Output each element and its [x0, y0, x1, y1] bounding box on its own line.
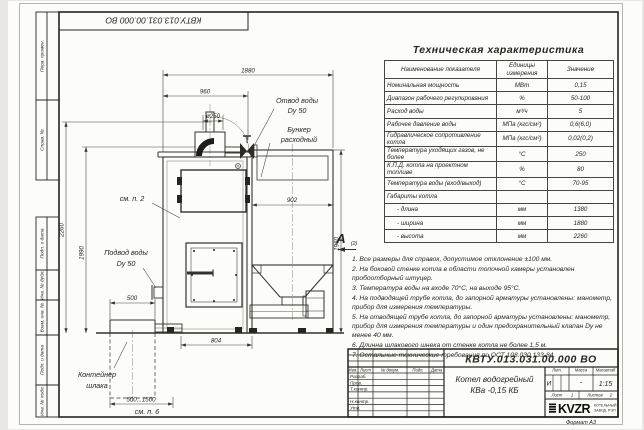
tech-table-title: Техническая характеристика: [384, 44, 613, 56]
col-izm: Изм.: [349, 367, 358, 372]
dim-960: 960: [200, 89, 211, 96]
list-value: 1: [571, 393, 574, 398]
label-bunker-1: Бункер: [287, 125, 310, 134]
stamp-sprav-no: Справ. №: [40, 129, 46, 151]
label-slag-container-1: Контейнер: [78, 370, 116, 379]
row-value: 2260: [548, 230, 614, 243]
view-a-ref: (2): [351, 241, 358, 247]
lit-header: Лит.: [551, 368, 562, 373]
table-row: - длинамм1380: [385, 203, 614, 216]
listov-label: Листов: [586, 393, 603, 398]
row-unit: МВт: [497, 79, 548, 92]
row-value: 70-95: [548, 177, 614, 190]
row-value: 0,6(6,0): [548, 118, 614, 131]
header-name: Наименование показателя: [385, 61, 497, 79]
label-see-note-2: см. п. 2: [120, 194, 144, 203]
row-name: Гидравлическое сопротивление котла: [385, 131, 497, 146]
dim-250: ø250: [206, 113, 221, 120]
row-value: 250: [548, 147, 614, 162]
row-name: Температура уходящих газов, не более: [385, 147, 497, 162]
stamp-perv-primen: Перв. примен.: [40, 40, 46, 72]
dim-1880: 1880: [241, 68, 255, 75]
label-water-outlet-2: Dy 50: [288, 106, 307, 115]
row-tkontr: Т.контр.: [350, 387, 369, 392]
note-6: 6. Длинна шлакового шнека от стенке котл…: [352, 342, 615, 351]
stamp-inv-podl: Инв. № подл.: [40, 386, 46, 416]
table-row: К.П.Д. котла на проектном топливе%80: [385, 162, 614, 177]
dim-2260: 2260: [59, 223, 66, 238]
row-value: 50-100: [548, 92, 614, 105]
label-bunker-2: расходный: [280, 135, 317, 144]
table-row: Расход водым³/ч5: [385, 105, 614, 118]
note-3: 3. Температура воды на входе 70°С, на вы…: [352, 285, 615, 294]
stamp-inv-dubl: Инв. № дубл.: [40, 270, 46, 300]
drawing-sheet: { "page": { "designation_top": "КВТУ.013…: [0, 0, 644, 430]
col-list: Лист: [359, 367, 371, 372]
row-unit: [497, 190, 548, 203]
label-slag-container-2: шлака: [86, 381, 107, 390]
note-4: 4. На подводящей трубе котла, до запорно…: [352, 295, 615, 313]
label-water-inlet-2: Dy 50: [117, 259, 136, 268]
table-row: Номинальная мощностьМВт0,15: [385, 79, 614, 92]
massa-header: Масса: [575, 368, 588, 373]
table-row: Температура уходящих газов, не более°С25…: [385, 147, 614, 162]
tech-table-header-row: Наименование показателя Единицы измерени…: [385, 61, 614, 79]
row-name: Габариты котла: [385, 190, 497, 203]
row-name: К.П.Д. котла на проектном топливе: [385, 162, 497, 177]
dim-500-1500: 500...1500: [126, 397, 156, 404]
dim-500: 500: [127, 295, 138, 302]
row-unit: МПа (кгс/см²): [497, 118, 548, 131]
header-unit: Единицы измерения: [497, 61, 548, 79]
listov-value: 2: [609, 393, 613, 398]
designation-top-text: КВТУ.013.031.00.000 ВО: [105, 16, 201, 26]
row-unit: мм: [497, 217, 548, 230]
dim-1990: 1990: [79, 246, 86, 260]
dim-902: 902: [287, 197, 298, 204]
note-1: 1. Все размеры для справок, допустимое о…: [352, 256, 615, 265]
note-7: 7. Остальные технические требования по О…: [352, 352, 615, 361]
table-row: Диапазон рабочего регулирования%50-100: [385, 92, 614, 105]
row-value: [548, 190, 614, 203]
logo-text: KVZR: [558, 402, 591, 416]
row-name: Расход воды: [385, 105, 497, 118]
row-name: Номинальная мощность: [385, 79, 497, 92]
technical-notes: 1. Все размеры для справок, допустимое о…: [352, 256, 615, 362]
row-value: 1880: [548, 217, 614, 230]
dim-804: 804: [211, 338, 222, 345]
list-label: Лист: [551, 393, 563, 398]
row-unit: мм: [497, 230, 548, 243]
stamp-podp-data-2: Подп. и дата: [40, 345, 46, 375]
logo-sub-1: КОТЕЛЬНЫЙ: [594, 404, 617, 408]
product-name-1: Котел водогрейный: [456, 375, 534, 384]
col-data: Дата: [430, 367, 443, 372]
row-name: - длина: [385, 203, 497, 216]
row-unit: МПа (кгс/см²): [497, 131, 548, 146]
row-unit: мм: [497, 203, 548, 216]
label-water-outlet-1: Отвод воды: [276, 96, 319, 105]
row-name: - высота: [385, 230, 497, 243]
row-value: 5: [548, 105, 614, 118]
note-5: 5. На отводящей трубе котла, до запорной…: [352, 314, 615, 341]
row-value: 0,02(0,2): [548, 131, 614, 146]
table-row: Рабочее давление водыМПа (кгс/см²)0,6(6,…: [385, 118, 614, 131]
format-label: Формат А3: [566, 420, 597, 426]
table-row: Температура воды (вход/выход)°С70-95: [385, 177, 614, 190]
row-name: - ширина: [385, 217, 497, 230]
label-water-inlet-1: Подвод воды: [104, 248, 148, 257]
table-row: - высотамм2260: [385, 230, 614, 243]
row-unit: м³/ч: [497, 105, 548, 118]
row-name: Диапазон рабочего регулирования: [385, 92, 497, 105]
row-unit: °С: [497, 147, 548, 162]
masshtab-value: 1:15: [599, 381, 613, 388]
stamp-vzam-inv: Взам. инв. №: [40, 303, 46, 333]
row-razrab: Разраб.: [350, 374, 367, 379]
row-value: 0,15: [548, 79, 614, 92]
view-a-letter: А: [335, 231, 345, 246]
row-value: 80: [548, 162, 614, 177]
logo-sub-2: ЗАВОД. РЭП: [594, 409, 616, 413]
row-unit: %: [497, 162, 548, 177]
row-utv: Утв.: [350, 406, 360, 411]
product-name-2: КВа -0,15 КБ: [470, 386, 519, 395]
stamp-podp-data-1: Подп. и дата: [40, 228, 46, 258]
masshtab-header: Масштаб: [596, 368, 616, 373]
row-unit: °С: [497, 177, 548, 190]
row-prov: Пров.: [350, 380, 362, 385]
col-dokum: № докум.: [381, 367, 399, 372]
row-nkontr: Н.контр.: [350, 399, 369, 404]
row-value: 1380: [548, 203, 614, 216]
row-name: Температура воды (вход/выход): [385, 177, 497, 190]
label-see-note-6: см. п. 6: [135, 407, 159, 416]
lit-value: И: [547, 381, 552, 388]
header-value: Значение: [548, 61, 614, 79]
tech-characteristics: Техническая характеристика Наименование …: [384, 44, 613, 243]
col-podp: Подп.: [412, 367, 423, 372]
row-unit: %: [497, 92, 548, 105]
table-row: - ширинамм1880: [385, 217, 614, 230]
tech-table: Наименование показателя Единицы измерени…: [384, 60, 614, 243]
row-name: Рабочее давление воды: [385, 118, 497, 131]
table-row: Габариты котла: [385, 190, 614, 203]
table-row: Гидравлическое сопротивление котлаМПа (к…: [385, 131, 614, 146]
note-2: 2. На боковой стенке котла в области топ…: [352, 266, 615, 284]
